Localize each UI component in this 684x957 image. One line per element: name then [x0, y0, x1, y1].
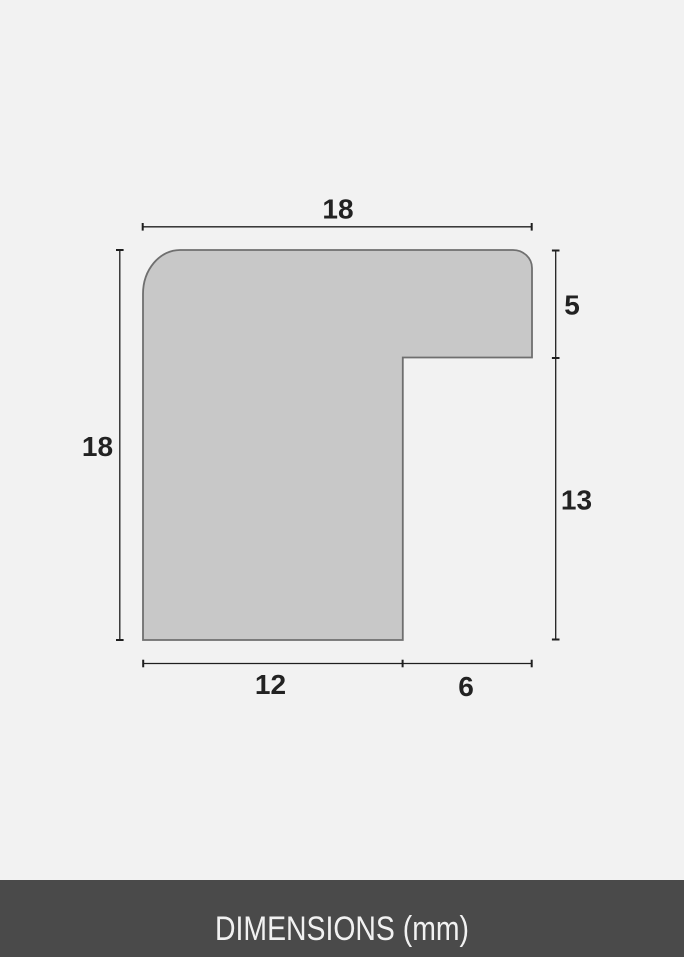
- svg-text:18: 18: [322, 194, 353, 225]
- svg-text:5: 5: [564, 290, 580, 321]
- svg-text:6: 6: [458, 671, 474, 702]
- svg-text:18: 18: [82, 431, 113, 462]
- svg-text:13: 13: [561, 485, 592, 516]
- svg-text:12: 12: [255, 669, 286, 700]
